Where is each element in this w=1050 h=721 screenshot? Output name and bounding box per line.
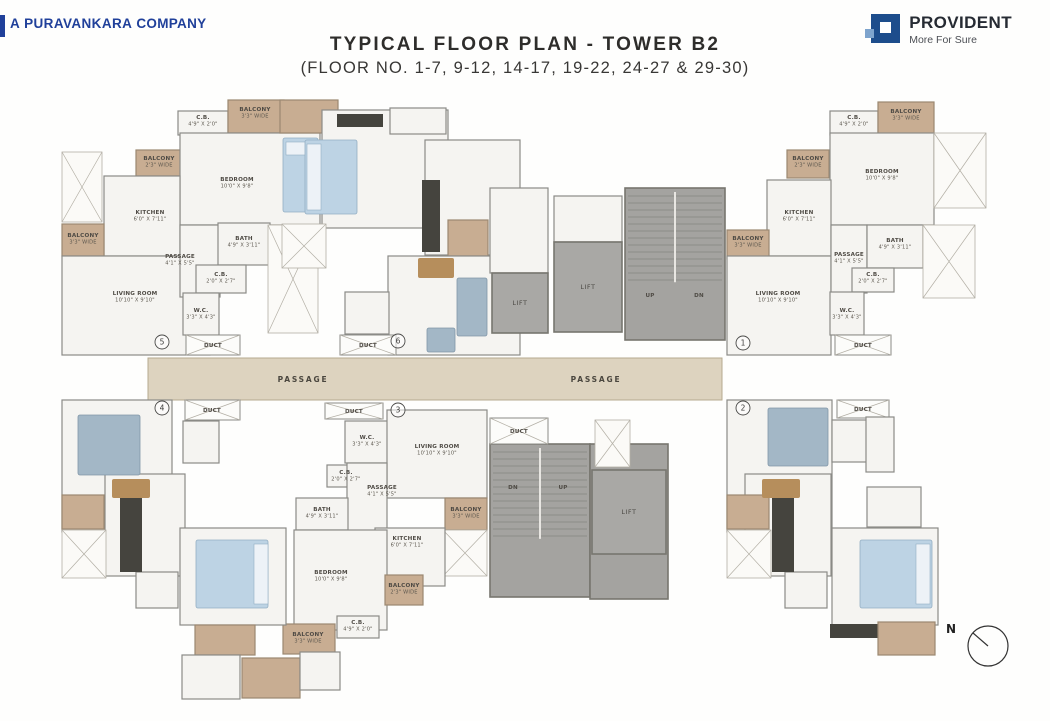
balcony-shape (242, 658, 300, 698)
room-dimension: 3'3" WIDE (294, 638, 321, 644)
room-dimension: 4'1" X 5'5" (367, 491, 396, 497)
room-label: DUCT (854, 407, 872, 413)
room-dimension: 2'0" X 2'7" (331, 476, 360, 482)
room-dimension: 10'10" X 9'10" (758, 297, 798, 303)
balcony-shape (727, 495, 769, 529)
room-dimension: 10'0" X 9'8" (866, 175, 899, 181)
room-label: DUCT (854, 343, 872, 349)
room-dimension: 4'9" X 2'0" (343, 626, 372, 632)
room-dimension: 4'1" X 5'5" (165, 260, 194, 266)
room-label: DN (694, 293, 704, 299)
unit-number: 6 (396, 337, 401, 346)
room-dimension: 4'9" X 3'11" (306, 513, 339, 519)
room-dimension: 10'10" X 9'10" (417, 450, 457, 456)
compass-north-label: N (946, 622, 956, 636)
room-label: DUCT (204, 343, 222, 349)
room-dimension: 6'0" X 7'11" (783, 216, 816, 222)
room-label: BALCONY3'3" WIDE (890, 109, 922, 121)
room-label: BALCONY2'3" WIDE (792, 156, 824, 168)
room-label: BALCONY3'3" WIDE (732, 236, 764, 248)
room-dimension: 2'3" WIDE (390, 589, 417, 595)
room-dimension: 3'3" X 4'3" (832, 314, 861, 320)
room-shape (345, 292, 389, 334)
room-dimension: 4'9" X 2'0" (839, 121, 868, 127)
room-shape (347, 463, 387, 535)
room-label: LIFT (622, 509, 637, 516)
room-shape (390, 108, 446, 134)
wood-shape (112, 479, 150, 498)
unit-number: 3 (396, 406, 401, 415)
floor-plan: C.B.4'9" X 2'0"BALCONY3'3" WIDEBALCONY2'… (0, 0, 1050, 721)
room-dimension: 2'3" WIDE (145, 162, 172, 168)
room-label: PASSAGE4'1" X 5'5" (834, 252, 864, 264)
room-dimension: 10'10" X 9'10" (115, 297, 155, 303)
room-label: BALCONY3'3" WIDE (292, 632, 324, 644)
room-dimension: 3'3" WIDE (241, 113, 268, 119)
sofa-shape (78, 415, 140, 475)
room-label: BALCONY3'3" WIDE (239, 107, 271, 119)
room-shape (490, 188, 548, 273)
pillow-shape (254, 544, 268, 604)
room-shape (554, 196, 622, 242)
room-label: BEDROOM10'0" X 9'8" (220, 177, 254, 189)
room-label: DUCT (345, 409, 363, 415)
room-label: LIFT (581, 284, 596, 291)
room-dimension: 6'0" X 7'11" (391, 542, 424, 548)
room-shape (183, 421, 219, 463)
room-label: PASSAGE (571, 375, 622, 384)
room-shape (832, 420, 868, 462)
room-label: BALCONY3'3" WIDE (450, 507, 482, 519)
pillow-shape (307, 144, 321, 210)
counter-shape (830, 624, 878, 638)
balcony-shape (62, 495, 104, 529)
room-label: LIVING ROOM10'10" X 9'10" (756, 291, 801, 303)
room-shape (136, 572, 178, 608)
sofa-shape (768, 408, 828, 466)
room-label: KITCHEN6'0" X 7'11" (134, 210, 167, 222)
room-dimension: 4'1" X 5'5" (834, 258, 863, 264)
room-dimension: 3'3" WIDE (734, 242, 761, 248)
room-dimension: 4'9" X 3'11" (879, 244, 912, 250)
compass-needle (973, 633, 988, 646)
counter-shape (772, 498, 794, 572)
unit-number: 1 (741, 339, 746, 348)
unit-number: 4 (160, 404, 165, 413)
unit-number: 2 (741, 404, 746, 413)
wood-shape (418, 258, 454, 278)
page: A PURAVANKARA COMPANY TYPICAL FLOOR PLAN… (0, 0, 1050, 721)
room-dimension: 3'3" WIDE (452, 513, 479, 519)
room-dimension: 2'0" X 2'7" (858, 278, 887, 284)
room-dimension: 10'0" X 9'8" (315, 576, 348, 582)
wood-shape (762, 479, 800, 498)
room-label: PASSAGE4'1" X 5'5" (165, 254, 195, 266)
room-label: LIVING ROOM10'10" X 9'10" (113, 291, 158, 303)
room-shape (300, 652, 340, 690)
corridor-shape (148, 358, 722, 400)
room-label: LIVING ROOM10'10" X 9'10" (415, 444, 460, 456)
room-shape (182, 655, 240, 699)
room-label: BEDROOM10'0" X 9'8" (314, 570, 348, 582)
room-label: DUCT (510, 429, 528, 435)
counter-shape (120, 498, 142, 572)
sofa-shape (457, 278, 487, 336)
room-label: BALCONY3'3" WIDE (67, 233, 99, 245)
pillow-shape (916, 544, 930, 604)
sofa-shape (427, 328, 455, 352)
room-label: DUCT (203, 408, 221, 414)
room-dimension: 3'3" X 4'3" (352, 441, 381, 447)
room-dimension: 10'0" X 9'8" (221, 183, 254, 189)
room-shape (867, 487, 921, 527)
counter-shape (337, 114, 383, 127)
room-label: PASSAGE (278, 375, 329, 384)
room-label: UP (645, 293, 654, 299)
counter-shape (422, 180, 440, 252)
room-label: DN (508, 485, 518, 491)
room-dimension: 2'0" X 2'7" (206, 278, 235, 284)
room-label: KITCHEN6'0" X 7'11" (783, 210, 816, 222)
room-shape (866, 417, 894, 472)
room-dimension: 4'9" X 2'0" (188, 121, 217, 127)
room-dimension: 3'3" WIDE (892, 115, 919, 121)
room-shape (785, 572, 827, 608)
room-label: BALCONY2'3" WIDE (388, 583, 420, 595)
room-label: DUCT (359, 343, 377, 349)
room-label: PASSAGE4'1" X 5'5" (367, 485, 397, 497)
balcony-shape (448, 220, 488, 256)
room-label: UP (558, 485, 567, 491)
room-dimension: 6'0" X 7'11" (134, 216, 167, 222)
room-label: BEDROOM10'0" X 9'8" (865, 169, 899, 181)
balcony-shape (878, 622, 935, 655)
unit-number: 5 (160, 338, 165, 347)
room-label: BALCONY2'3" WIDE (143, 156, 175, 168)
room-dimension: 3'3" X 4'3" (186, 314, 215, 320)
room-dimension: 4'9" X 3'11" (228, 242, 261, 248)
room-dimension: 3'3" WIDE (69, 239, 96, 245)
room-dimension: 2'3" WIDE (794, 162, 821, 168)
balcony-shape (195, 625, 255, 655)
room-label: LIFT (513, 300, 528, 307)
room-label: KITCHEN6'0" X 7'11" (391, 536, 424, 548)
